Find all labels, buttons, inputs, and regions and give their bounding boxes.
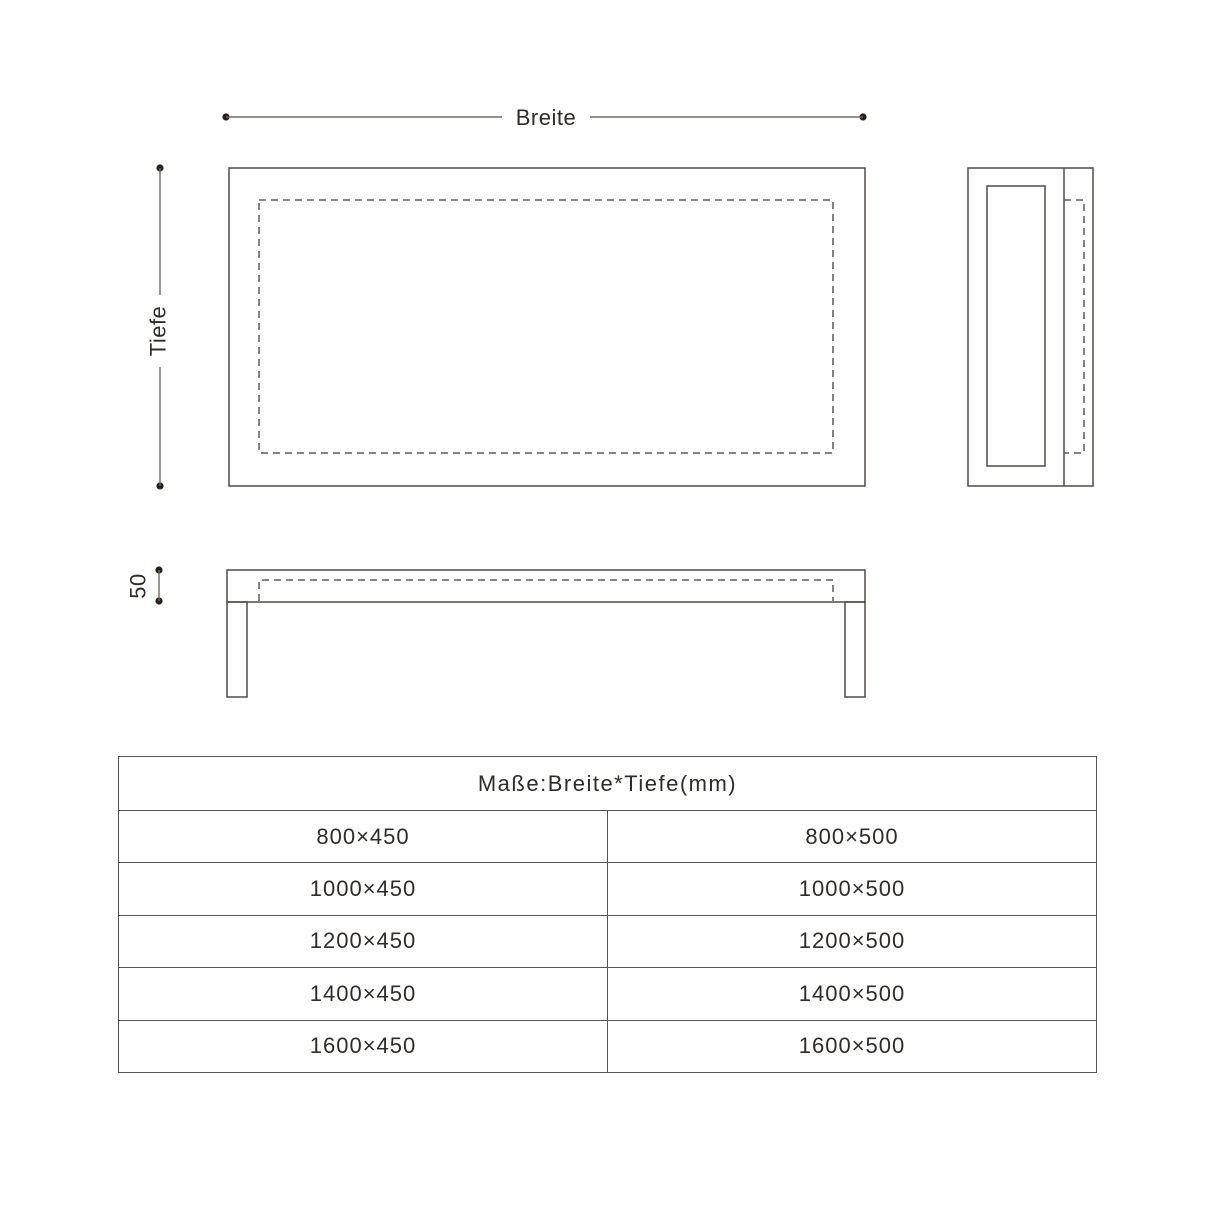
side-view <box>968 168 1093 486</box>
table-row: 1600×450 1600×500 <box>119 1020 1097 1072</box>
tiefe-dimension: Tiefe <box>146 164 171 489</box>
side-view-panel <box>987 186 1045 466</box>
size-cell: 1600×500 <box>608 1020 1097 1072</box>
breite-dimension: Breite <box>222 105 866 130</box>
size-cell: 1000×500 <box>608 863 1097 915</box>
dimension-drawing: Breite Tiefe 50 <box>0 0 1214 740</box>
table-row: 800×450 800×500 <box>119 811 1097 863</box>
size-table: Maße:Breite*Tiefe(mm) 800×450 800×500 10… <box>118 756 1097 1073</box>
breite-label: Breite <box>516 105 576 130</box>
size-cell: 1400×450 <box>119 968 608 1020</box>
table-row: 1400×450 1400×500 <box>119 968 1097 1020</box>
table-header-cell: Maße:Breite*Tiefe(mm) <box>119 757 1097 811</box>
front-view-top-slab <box>227 570 865 602</box>
side-view-hidden-edge <box>1064 200 1084 453</box>
size-cell: 1200×450 <box>119 915 608 967</box>
top-view <box>229 168 865 486</box>
height-dimension: 50 <box>126 566 163 604</box>
page: Breite Tiefe 50 <box>0 0 1214 1214</box>
size-cell: 800×500 <box>608 811 1097 863</box>
size-cell: 1000×450 <box>119 863 608 915</box>
size-cell: 1200×500 <box>608 915 1097 967</box>
table-row: 1000×450 1000×500 <box>119 863 1097 915</box>
top-view-hidden-edge <box>259 200 833 453</box>
size-cell: 1400×500 <box>608 968 1097 1020</box>
size-cell: 800×450 <box>119 811 608 863</box>
table-header-row: Maße:Breite*Tiefe(mm) <box>119 757 1097 811</box>
front-view-hidden-edge <box>259 580 833 601</box>
front-view-right-leg <box>845 602 865 697</box>
table-row: 1200×450 1200×500 <box>119 915 1097 967</box>
front-view-left-leg <box>227 602 247 697</box>
size-cell: 1600×450 <box>119 1020 608 1072</box>
height-label: 50 <box>126 573 151 598</box>
top-view-outline <box>229 168 865 486</box>
tiefe-label: Tiefe <box>146 306 171 357</box>
front-view <box>227 570 865 697</box>
